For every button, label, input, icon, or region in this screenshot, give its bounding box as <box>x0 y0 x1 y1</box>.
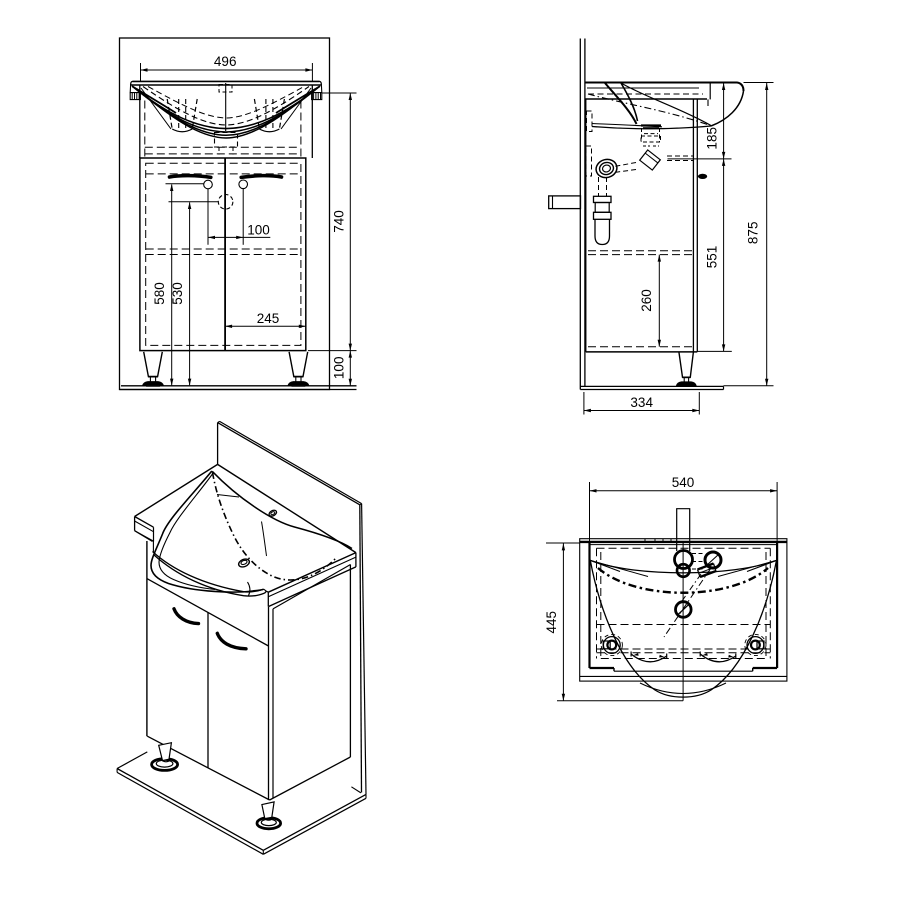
svg-text:540: 540 <box>672 475 695 490</box>
svg-text:875: 875 <box>746 222 761 245</box>
svg-text:100: 100 <box>247 222 270 237</box>
svg-text:496: 496 <box>214 54 237 69</box>
svg-text:260: 260 <box>639 289 654 312</box>
svg-text:445: 445 <box>544 611 559 634</box>
svg-text:334: 334 <box>630 395 653 410</box>
svg-text:100: 100 <box>332 357 347 380</box>
svg-text:530: 530 <box>170 282 185 305</box>
svg-text:245: 245 <box>257 311 280 326</box>
svg-text:551: 551 <box>704 246 719 269</box>
svg-text:185: 185 <box>704 127 719 150</box>
svg-text:580: 580 <box>152 282 167 305</box>
svg-text:740: 740 <box>332 210 347 233</box>
